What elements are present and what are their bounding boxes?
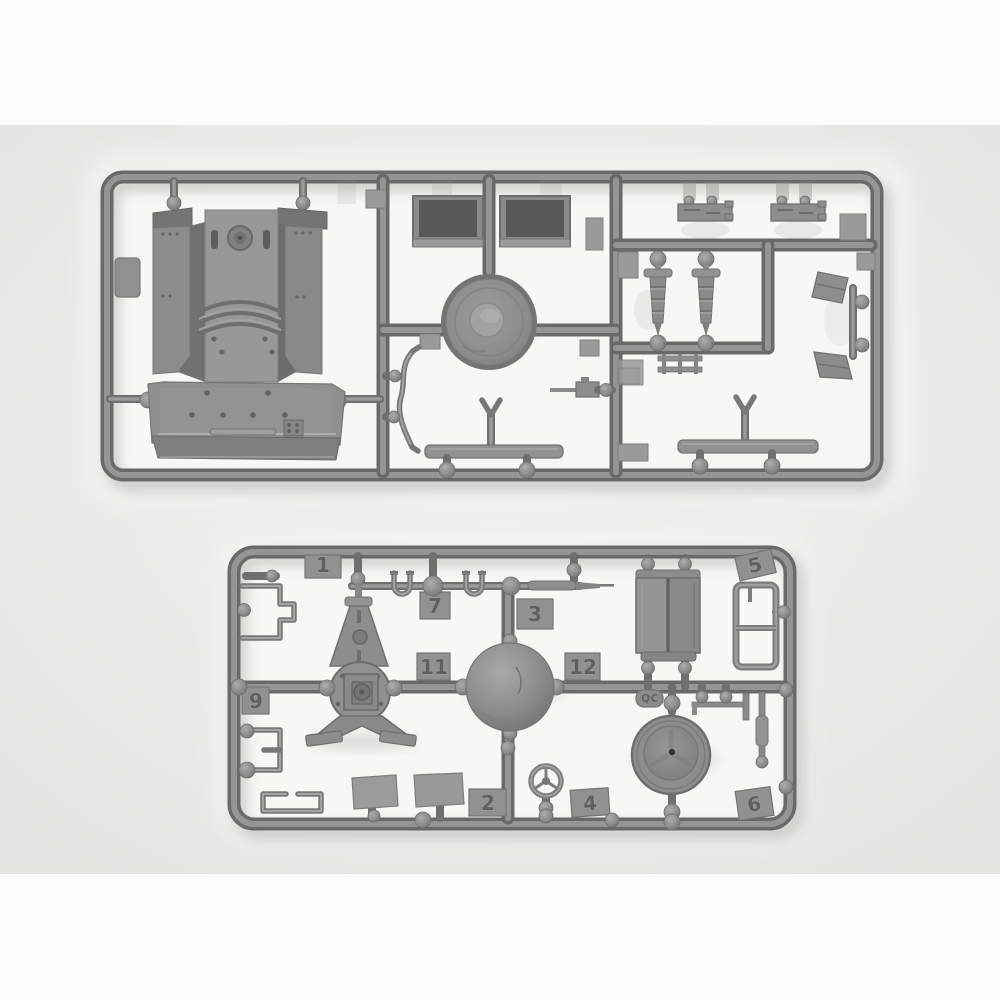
runner-ball (567, 563, 581, 577)
qc-stamp-text: QC (641, 693, 659, 705)
ammo-box-part-2 (500, 196, 570, 247)
tab-digit: 7 (428, 594, 442, 618)
runner-ball (423, 576, 443, 596)
qc-stamp: QC (636, 690, 663, 707)
side-plate-part (115, 258, 140, 297)
tab-digit: 11 (420, 655, 448, 679)
part-number-tab-12: 12 (565, 653, 600, 680)
model-kit-sprue-photo: 1 7 3 5 9 11 1 (0, 0, 1000, 1000)
runner-ball (502, 577, 520, 595)
part-number-tab-3: 3 (517, 599, 553, 629)
tab-digit: 2 (481, 791, 495, 815)
part-number-tab-1: 1 (305, 553, 341, 578)
flat-panel-part-2 (414, 773, 464, 807)
ammo-box-part-1 (413, 196, 483, 247)
photo-canvas: 1 7 3 5 9 11 1 (0, 0, 1000, 1000)
flat-panel-part-1 (352, 775, 398, 809)
part-number-tab-4: 4 (570, 788, 610, 818)
tab-digit: 1 (316, 553, 330, 577)
vehicle-hull-part (140, 196, 346, 460)
part-number-tab-2: 2 (469, 789, 506, 816)
part-number-tab-6: 6 (735, 787, 774, 821)
part-number-tab-11: 11 (417, 653, 450, 680)
tab-digit: 4 (582, 791, 598, 816)
tab-digit: 3 (528, 602, 542, 626)
tab-digit: 12 (569, 655, 597, 679)
tab-digit: 9 (249, 689, 263, 713)
rack-part (658, 354, 702, 374)
double-door-part (636, 558, 700, 675)
